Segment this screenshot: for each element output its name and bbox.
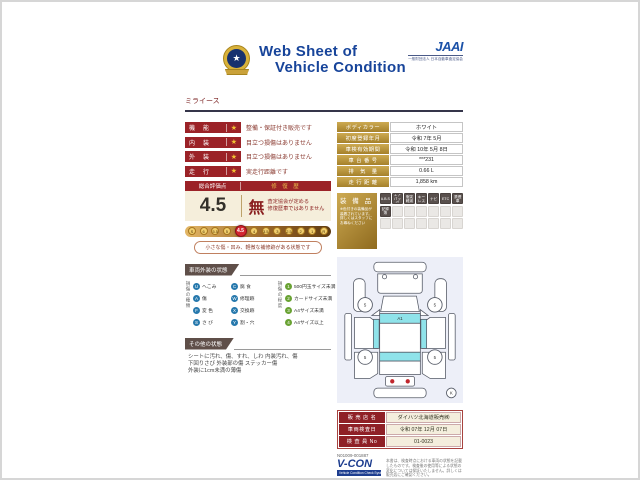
rating-category-box: 走 行 ★ bbox=[185, 166, 241, 177]
spec-value: 令和 10年 5月 8日 bbox=[390, 144, 463, 154]
damage-degree-symbol: 3 bbox=[285, 307, 292, 314]
rating-row: 走 行 ★ 実走行距離です bbox=[185, 166, 331, 177]
tail-lamp-left bbox=[390, 379, 394, 383]
scale-badge: R bbox=[320, 227, 328, 235]
right-column: ボディカラー ホワイト 初度登録年月 令和 7年 5月 車検有効期間 令和 10… bbox=[337, 122, 463, 478]
damage-type-label: 交換跡 bbox=[240, 307, 254, 314]
left-column: 機 能 ★ 整備・保証付き販売です 内 装 ★ 目立つ損傷はありません 外 装 … bbox=[185, 122, 331, 478]
damage-type-symbol: A bbox=[193, 295, 200, 302]
scale-badge: 3.5 bbox=[262, 227, 270, 235]
scale-badge: 3 bbox=[273, 227, 281, 235]
damage-type-label: 傷 bbox=[202, 295, 207, 302]
damage-degree-symbol: 1 bbox=[285, 283, 292, 290]
scale-badge: 4.5 bbox=[235, 225, 247, 237]
damage-type-symbol: F bbox=[193, 307, 200, 314]
section-rule bbox=[234, 349, 331, 350]
other-condition-lines: シートに汚れ、傷、すれ、しわ 内装汚れ、傷下回りさび 外装部の傷 ステッカー傷外… bbox=[185, 354, 331, 375]
repair-history-header: 修 復 歴 bbox=[241, 182, 331, 190]
spec-label: 車検有効期間 bbox=[337, 144, 389, 154]
tailgate bbox=[380, 361, 421, 375]
damage-type-item: C 腐 食 bbox=[231, 281, 267, 292]
rating-row: 外 装 ★ 目立つ損傷はありません bbox=[185, 151, 331, 162]
sheet-content: ★ Web Sheet of Vehicle Condition JAAI 一般… bbox=[185, 36, 463, 480]
equipment-badge: 衝突軽減 bbox=[404, 193, 415, 204]
rating-category-label: 機 能 bbox=[189, 123, 210, 132]
sheet-title: Web Sheet of Vehicle Condition bbox=[259, 44, 406, 76]
equipment-badge: キーレス bbox=[416, 193, 427, 204]
damage-degree-item: 2 カードサイズ未満 bbox=[285, 293, 335, 304]
section-rule bbox=[240, 275, 331, 276]
equipment-title: 装 備 品 bbox=[340, 195, 374, 205]
damage-type-item: A 傷 bbox=[193, 293, 229, 304]
disclaimer-text: 本書は、検査時点における車両の状態を記載したものです。検査後の使用等による状態の… bbox=[386, 459, 463, 478]
star-icon: ★ bbox=[226, 124, 237, 132]
rating-category-box: 機 能 ★ bbox=[185, 122, 241, 133]
equipment-panel: 装 備 品 ※色付きの装備品が装着されています。詳しくはスタッフにお尋ねください bbox=[337, 193, 377, 249]
damage-type-label: 変 色 bbox=[202, 307, 213, 314]
car-expanded-diagram: A1 5 5 5 5 K bbox=[337, 257, 463, 403]
scale-badge: 1 bbox=[308, 227, 316, 235]
title-line1: Web Sheet of bbox=[259, 44, 406, 60]
spec-row: 車検有効期間 令和 10年 5月 8日 bbox=[337, 144, 463, 154]
repair-history-block: 無 査定協会が定める 修復歴車ではありません bbox=[242, 194, 331, 218]
damage-type-label: さ び bbox=[202, 319, 213, 326]
spec-row: ボディカラー ホワイト bbox=[337, 122, 463, 132]
repair-history-value: 無 bbox=[249, 194, 265, 218]
damage-degree-item: 4 A4サイズ以上 bbox=[285, 317, 335, 328]
rating-category-box: 内 装 ★ bbox=[185, 137, 241, 148]
damage-type-symbol: U bbox=[193, 283, 200, 290]
damage-degree-item: 1 500円玉サイズ未満 bbox=[285, 281, 335, 292]
repair-history-note: 査定協会が定める 修復歴車ではありません bbox=[268, 199, 325, 212]
damage-type-label: 割・穴 bbox=[240, 319, 254, 326]
star-icon: ★ bbox=[226, 153, 237, 161]
other-condition-line: シートに汚れ、傷、すれ、しわ 内装汚れ、傷 bbox=[188, 354, 331, 361]
sill-left bbox=[345, 314, 352, 360]
dealer-value: 01-0023 bbox=[386, 436, 461, 447]
spec-value: 0.66 L bbox=[390, 166, 463, 176]
damage-type-item: Y 割・穴 bbox=[231, 317, 267, 328]
front-bumper bbox=[374, 262, 426, 272]
jaai-emblem-icon: ★ bbox=[223, 45, 251, 79]
equipment-badge: ETC bbox=[440, 193, 451, 204]
cowl-panel bbox=[381, 296, 420, 311]
equipment-badge: エアバッグ bbox=[392, 193, 403, 204]
tail-lamp-right bbox=[406, 379, 410, 383]
model-name: ミライース bbox=[185, 98, 220, 105]
mirror-left bbox=[372, 310, 380, 316]
damage-degree-label: A4サイズ以上 bbox=[294, 319, 324, 326]
damage-degree-symbol: 2 bbox=[285, 295, 292, 302]
equipment-badge: A.B.S bbox=[380, 193, 391, 204]
spec-value: ***231 bbox=[390, 155, 463, 165]
headlight-right bbox=[413, 275, 417, 279]
damage-type-vertical-label: 損傷の種類 bbox=[185, 281, 191, 328]
damage-degree-symbol: 4 bbox=[285, 319, 292, 326]
equipment-note: ※色付きの装備品が装着されています。詳しくはスタッフにお尋ねください bbox=[340, 207, 374, 225]
star-icon: ★ bbox=[226, 167, 237, 175]
equipment-badge bbox=[452, 206, 463, 217]
corner-mark: K bbox=[450, 391, 453, 396]
spec-value: ホワイト bbox=[390, 122, 463, 132]
vcon-row: V-CON Vehicle Condition Check System 本書は… bbox=[337, 459, 463, 478]
rating-scale-bar: S65.554.543.532.521R bbox=[185, 226, 331, 237]
equipment-badge bbox=[440, 218, 451, 229]
roof bbox=[380, 323, 421, 352]
rating-category-label: 外 装 bbox=[189, 152, 210, 161]
rating-category-label: 走 行 bbox=[189, 167, 210, 176]
damage-type-symbol: W bbox=[231, 295, 238, 302]
mirror-right bbox=[420, 310, 428, 316]
damage-type-symbol: X bbox=[231, 307, 238, 314]
damage-degree-item: 3 A4サイズ未満 bbox=[285, 305, 335, 316]
spec-label: ボディカラー bbox=[337, 122, 389, 132]
damage-degree-label: A4サイズ未満 bbox=[294, 307, 324, 314]
other-condition-line: 外装に1cm未満の薄傷 bbox=[188, 368, 331, 375]
scale-note-bubble: 小さな傷・凹み、軽微な補修跡がある状態です bbox=[194, 241, 322, 254]
spec-row: 走 行 距 離 1,858 km bbox=[337, 177, 463, 187]
rear-panel bbox=[385, 376, 414, 386]
damage-type-item: W 修理跡 bbox=[231, 293, 267, 304]
spec-label: 走 行 距 離 bbox=[337, 177, 389, 187]
damage-legend: 損傷の種類 U へこみ C 腐 食 A 傷 W 修理跡 F 変 色 X 交換跡 … bbox=[185, 281, 331, 328]
damage-degree-label: 500円玉サイズ未満 bbox=[294, 283, 335, 290]
other-section-head: その他の状態 bbox=[185, 338, 331, 350]
rating-description: 整備・保証付き販売です bbox=[246, 123, 312, 132]
equipment-badge bbox=[392, 206, 403, 217]
headlight-left bbox=[382, 275, 386, 279]
damage-degrees-grid: 1 500円玉サイズ未満 2 カードサイズ未満 3 A4サイズ未満 4 A4サイ… bbox=[285, 281, 335, 328]
equipment-badge bbox=[416, 218, 427, 229]
damage-type-symbol: Y bbox=[231, 319, 238, 326]
equipment-badge: 禁煙車 bbox=[452, 193, 463, 204]
jaai-logo: JAAI 一般財団法人 日本自動車査定協会 bbox=[408, 39, 463, 62]
rating-category-box: 外 装 ★ bbox=[185, 151, 241, 162]
scale-badge: 6 bbox=[200, 227, 208, 235]
other-section-tab: その他の状態 bbox=[185, 338, 234, 350]
equipment-badge bbox=[416, 206, 427, 217]
vcon-tagline: Vehicle Condition Check System bbox=[337, 470, 381, 476]
rating-row: 機 能 ★ 整備・保証付き販売です bbox=[185, 122, 331, 133]
vcon-logo-text: V-CON bbox=[337, 459, 381, 469]
scale-badge: 5 bbox=[223, 227, 231, 235]
damage-type-item: S さ び bbox=[193, 317, 229, 328]
overall-score-value: 4.5 bbox=[185, 195, 241, 217]
sill-right bbox=[448, 314, 455, 360]
scale-badge: S bbox=[188, 227, 196, 235]
equipment-badge bbox=[428, 206, 439, 217]
rating-description: 目立つ損傷はありません bbox=[246, 138, 312, 147]
rear-glass bbox=[380, 352, 421, 361]
model-row: ミライース bbox=[185, 90, 463, 112]
spec-value: 1,858 km bbox=[390, 177, 463, 187]
jaai-logo-text: JAAI bbox=[408, 39, 463, 54]
vehicle-condition-sheet: ★ Web Sheet of Vehicle Condition JAAI 一般… bbox=[0, 0, 640, 480]
exterior-section-head: 車両外装の状態 bbox=[185, 264, 331, 276]
equipment-badge bbox=[392, 218, 403, 229]
spec-row: 車 台 番 号 ***231 bbox=[337, 155, 463, 165]
dealer-row: 車両検査日 令和 07年 12月 07日 bbox=[339, 424, 461, 435]
dealer-label: 検 査 員 No bbox=[339, 436, 385, 447]
equipment-badge bbox=[404, 206, 415, 217]
spec-table: ボディカラー ホワイト 初度登録年月 令和 7年 5月 車検有効期間 令和 10… bbox=[337, 122, 463, 187]
dealer-value: 令和 07年 12月 07日 bbox=[386, 424, 461, 435]
title-line2: Vehicle Condition bbox=[275, 60, 406, 76]
equipment-badge bbox=[452, 218, 463, 229]
damage-degree-vertical-label: 損傷の程度 bbox=[277, 281, 283, 328]
damage-type-item: F 変 色 bbox=[193, 305, 229, 316]
scale-badge: 5.5 bbox=[211, 227, 219, 235]
equipment-badge bbox=[440, 206, 451, 217]
side-glass-right bbox=[421, 319, 427, 348]
dealer-label: 車両検査日 bbox=[339, 424, 385, 435]
damage-type-label: 腐 食 bbox=[240, 283, 251, 290]
rating-category-label: 内 装 bbox=[189, 138, 210, 147]
dealer-table: 販 売 店 名 ダイハツ北海道販売㈱ 車両検査日 令和 07年 12月 07日 … bbox=[337, 410, 463, 449]
damage-degree-label: カードサイズ未満 bbox=[294, 295, 332, 302]
dealer-row: 検 査 員 No 01-0023 bbox=[339, 436, 461, 447]
dealer-value: ダイハツ北海道販売㈱ bbox=[386, 412, 461, 423]
overall-score-header: 総合評価点 bbox=[185, 182, 241, 190]
dealer-label: 販 売 店 名 bbox=[339, 412, 385, 423]
equipment-badge bbox=[404, 218, 415, 229]
rating-description: 目立つ損傷はありません bbox=[246, 152, 312, 161]
spec-value: 令和 7年 5月 bbox=[390, 133, 463, 143]
overall-rating-block: 総合評価点 修 復 歴 4.5 無 査定協会が定める 修復歴車ではありません bbox=[185, 181, 331, 221]
rating-rows: 機 能 ★ 整備・保証付き販売です 内 装 ★ 目立つ損傷はありません 外 装 … bbox=[185, 122, 331, 177]
damage-type-item: X 交換跡 bbox=[231, 305, 267, 316]
equipment-badge bbox=[428, 218, 439, 229]
damage-types-grid: U へこみ C 腐 食 A 傷 W 修理跡 F 変 色 X 交換跡 S さ び … bbox=[193, 281, 267, 328]
spec-label: 車 台 番 号 bbox=[337, 155, 389, 165]
sheet-header: ★ Web Sheet of Vehicle Condition JAAI 一般… bbox=[185, 36, 463, 88]
rating-row: 内 装 ★ 目立つ損傷はありません bbox=[185, 137, 331, 148]
windshield-damage-mark: A1 bbox=[397, 316, 403, 321]
exterior-section-tab: 車両外装の状態 bbox=[185, 264, 240, 276]
scale-badge: 2 bbox=[297, 227, 305, 235]
equipment-block: 装 備 品 ※色付きの装備品が装着されています。詳しくはスタッフにお尋ねください… bbox=[337, 193, 463, 249]
vcon-logo: V-CON Vehicle Condition Check System bbox=[337, 459, 381, 478]
scale-badge: 2.5 bbox=[285, 227, 293, 235]
dealer-row: 販 売 店 名 ダイハツ北海道販売㈱ bbox=[339, 412, 461, 423]
scale-badge: 4 bbox=[250, 227, 258, 235]
spec-row: 排 気 量 0.66 L bbox=[337, 166, 463, 176]
spec-label: 初度登録年月 bbox=[337, 133, 389, 143]
damage-type-symbol: C bbox=[231, 283, 238, 290]
equipment-grid: A.B.Sエアバッグ衝突軽減キーレスナビETC禁煙車記録簿 bbox=[380, 193, 463, 249]
damage-type-label: 修理跡 bbox=[240, 295, 254, 302]
equipment-badge: ナビ bbox=[428, 193, 439, 204]
side-glass-left bbox=[373, 319, 379, 348]
equipment-badge: 記録簿 bbox=[380, 206, 391, 217]
other-condition-line: 下回りさび 外装部の傷 ステッカー傷 bbox=[188, 361, 331, 368]
spec-label: 排 気 量 bbox=[337, 166, 389, 176]
rating-description: 実走行距離です bbox=[246, 167, 288, 176]
spec-row: 初度登録年月 令和 7年 5月 bbox=[337, 133, 463, 143]
star-icon: ★ bbox=[226, 138, 237, 146]
car-diagram-svg: A1 5 5 5 5 K bbox=[339, 259, 461, 401]
damage-type-item: U へこみ bbox=[193, 281, 229, 292]
damage-type-label: へこみ bbox=[202, 283, 216, 290]
rear-bumper bbox=[374, 388, 426, 398]
jaai-subtitle: 一般財団法人 日本自動車査定協会 bbox=[408, 55, 463, 62]
damage-type-symbol: S bbox=[193, 319, 200, 326]
equipment-badge bbox=[380, 218, 391, 229]
